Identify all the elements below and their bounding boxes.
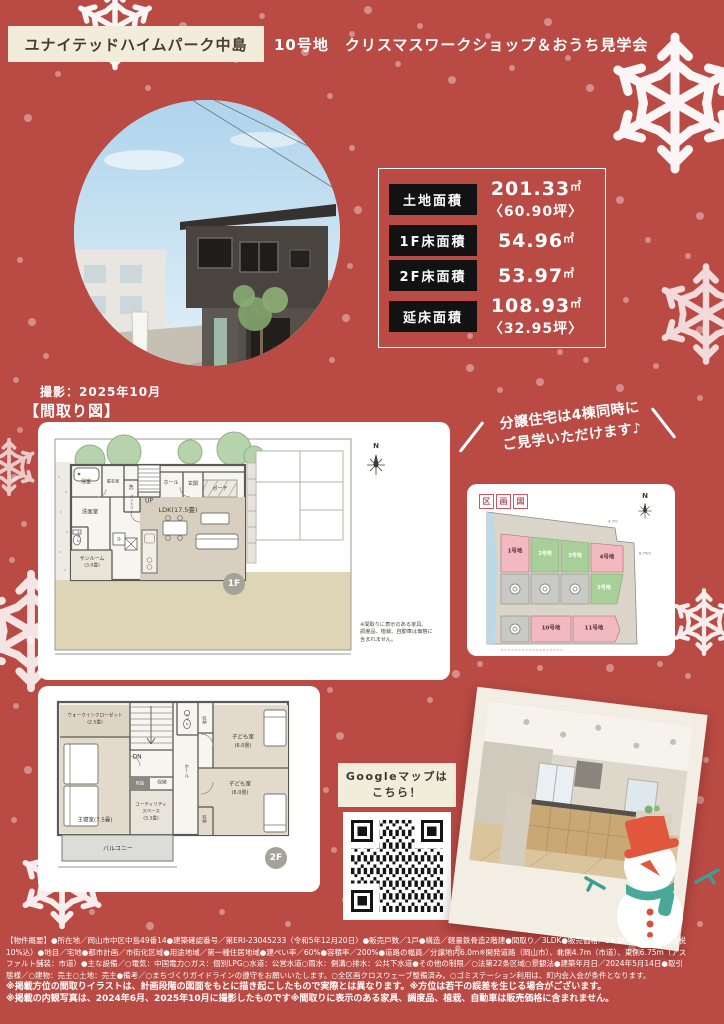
table-row: 土地面積 201.33㎡ 〈60.90坪〉 bbox=[389, 178, 595, 221]
room-label-sunroom: サンルーム bbox=[80, 556, 105, 562]
dimension-label-right: 6.75m bbox=[639, 552, 651, 557]
area-unit: ㎡ bbox=[563, 267, 574, 280]
room-label-void: 吹抜 bbox=[136, 780, 144, 785]
buttons bbox=[647, 909, 654, 939]
room-label-porch: ポーチ bbox=[212, 486, 227, 492]
room-label-closet-right: 収納 bbox=[202, 815, 207, 823]
room-label-utility3: (3.3畳) bbox=[143, 816, 158, 822]
room-label-sunroom-size: (3.0畳) bbox=[84, 563, 99, 569]
floorplan-1f-card: 浴室 脱衣室 洗 UP パントリー ホール 玄関 ポーチ LDK(17.5畳) … bbox=[38, 422, 450, 680]
room-label-kids2: 子ども室 bbox=[229, 782, 251, 789]
area-value: 108.93 bbox=[491, 295, 570, 317]
room-label-master: 主寝室(7.5畳) bbox=[77, 818, 112, 825]
area-label: 1F床面積 bbox=[389, 225, 477, 256]
floorplan-heading: 【間取り図】 bbox=[24, 400, 120, 421]
area-unit: ㎡ bbox=[563, 232, 574, 245]
area-label: 2F床面積 bbox=[389, 260, 477, 291]
compass-north-label: N bbox=[373, 442, 379, 450]
lot-label-10: 10号地 bbox=[542, 626, 561, 633]
dimension-label-top: 4.7m bbox=[608, 520, 618, 525]
room-label-wic: ウォークインクローゼット bbox=[67, 713, 122, 719]
furniture-note: ※間取りに表示のある家具、 調度品、植栽、自動車は価格に 含まれません。 bbox=[360, 622, 433, 644]
table-row: 1F床面積 54.96㎡ bbox=[389, 225, 595, 256]
area-value: 54.96 bbox=[498, 230, 563, 252]
room-label-kids1-size: (6.0畳) bbox=[235, 743, 252, 749]
footer-line: 10%込）●地目／宅地●都市計画／市街化区域●用途地域／第一種住居地域●建ぺい率… bbox=[6, 947, 720, 959]
floor-badge-2f: 2F bbox=[265, 847, 287, 869]
neighbor-house-outline bbox=[256, 451, 343, 540]
floorplan-2f-card: ウォークインクローゼット (2.5畳) DN トイレ 収納 子ども室 (6.0畳… bbox=[38, 686, 320, 892]
kitchen-icon bbox=[142, 530, 157, 573]
stairs-1f bbox=[138, 465, 160, 492]
plot-map-title: 区画図 bbox=[479, 494, 528, 509]
area-subvalue: 〈60.90坪〉 bbox=[477, 201, 595, 221]
area-label: 延床面積 bbox=[389, 301, 477, 332]
room-label-toilet: トイレ bbox=[76, 530, 81, 543]
footer-line: 【物件概要】●所在地／岡山市中区中島49番14●建築確認番号／第ERI-2304… bbox=[6, 935, 720, 947]
room-label-up: UP bbox=[145, 497, 153, 504]
range-hood bbox=[574, 760, 603, 789]
property-overview-text: 【物件概要】●所在地／岡山市中区中島49番14●建築確認番号／第ERI-2304… bbox=[6, 935, 720, 1005]
room-label-hall: ホール bbox=[163, 480, 178, 486]
room-label-wic-size: (2.5畳) bbox=[87, 720, 102, 726]
qr-code-icon bbox=[351, 820, 443, 912]
room-label-pantry: パントリー bbox=[130, 495, 135, 514]
area-summary-table: 土地面積 201.33㎡ 〈60.90坪〉 1F床面積 54.96㎡ 2F床面積… bbox=[378, 168, 606, 348]
lot-label-1: 1号地 bbox=[508, 549, 523, 556]
qr-code bbox=[343, 812, 451, 920]
room-label-dn: DN bbox=[132, 753, 141, 760]
compass-north-label: N bbox=[642, 492, 648, 500]
deck-strip bbox=[247, 463, 256, 563]
area-unit: ㎡ bbox=[570, 297, 581, 310]
event-title: 10号地 クリスマスワークショップ＆おうち見学会 bbox=[274, 26, 648, 62]
room-label-balcony: バルコニー bbox=[103, 845, 133, 852]
footer-line: ファルト舗装：市道）●主な設備／○電気：中国電力○ガス：個別LPG○水道：公営水… bbox=[6, 958, 720, 970]
table-row: 延床面積 108.93㎡ 〈32.95坪〉 bbox=[389, 295, 595, 338]
house-exterior-photo bbox=[74, 100, 340, 366]
table-row: 2F床面積 53.97㎡ bbox=[389, 260, 595, 291]
compass-icon bbox=[636, 501, 654, 521]
room-label-bath: 浴室 bbox=[81, 479, 91, 485]
room-label-kids2-size: (6.0畳) bbox=[232, 790, 249, 796]
lot-label-3: 3号地 bbox=[568, 553, 581, 559]
project-name-banner: ユナイテッドハイムパーク中島 bbox=[8, 26, 264, 62]
area-value: 201.33 bbox=[491, 178, 570, 200]
room-label-toilet-2f: トイレ bbox=[185, 713, 190, 726]
room-label-laundry: 洗 bbox=[128, 485, 133, 491]
snowman-icon bbox=[578, 816, 724, 948]
compass-icon bbox=[364, 452, 388, 478]
photo-caption: 撮影：2025年10月 bbox=[40, 383, 161, 400]
lot-label-2: 2号地 bbox=[538, 551, 551, 557]
plot-map-card: 区画図 N 1号地 2号地 3号地 4号地 5号地 10号地 11号地 4.7m… bbox=[467, 484, 675, 656]
area-subvalue: 〈32.95坪〉 bbox=[477, 318, 595, 338]
footer-note: ※掲載の内観写真は、2024年6月、2025年10月に撮影したものです※間取りに… bbox=[6, 993, 720, 1005]
room-label-closet-top: 収納 bbox=[202, 716, 207, 724]
google-map-label: Googleマップは こちら！ bbox=[338, 763, 456, 807]
room-label-hall-2f: ホール bbox=[183, 764, 189, 778]
area-unit: ㎡ bbox=[570, 180, 581, 193]
floor-badge-1f: 1F bbox=[223, 573, 245, 595]
lot-label-4: 4号地 bbox=[600, 555, 615, 562]
room-label-powder: 洗面室 bbox=[82, 510, 99, 517]
room-label-ldk: LDK(17.5畳) bbox=[159, 507, 198, 515]
area-value: 53.97 bbox=[498, 265, 563, 287]
room-label-utility1: ユーティリティ bbox=[135, 802, 167, 808]
area-label: 土地面積 bbox=[389, 184, 477, 215]
tv-board-icon bbox=[201, 513, 229, 524]
flyer-page: ユナイテッドハイムパーク中島 10号地 クリスマスワークショップ＆おうち見学会 bbox=[0, 0, 724, 1024]
room-label-kids1: 子ども室 bbox=[232, 735, 254, 742]
room-label-closet-mid: 収納 bbox=[157, 780, 166, 786]
sofa-icon bbox=[196, 534, 238, 549]
room-label-entrance: 玄関 bbox=[188, 481, 198, 487]
lot-label-5: 5号地 bbox=[597, 585, 610, 591]
project-name: ユナイテッドハイムパーク中島 bbox=[24, 34, 247, 55]
room-label-utility2: スペース bbox=[142, 809, 160, 815]
lot-label-11: 11号地 bbox=[585, 626, 604, 633]
footer-note: ※掲載方位の間取りイラストは、計画段階の図面をもとに描き起こしたもので実際とは異… bbox=[6, 981, 720, 993]
room-label-dressing: 脱衣室 bbox=[107, 478, 120, 483]
storage-x-box bbox=[125, 538, 137, 550]
footer-line: 態様／○建物：売主○土地：売主●備考／○まちづくりガイドラインの遵守をお願いいた… bbox=[6, 970, 720, 982]
room-label-fridge: 冷 bbox=[117, 536, 121, 541]
